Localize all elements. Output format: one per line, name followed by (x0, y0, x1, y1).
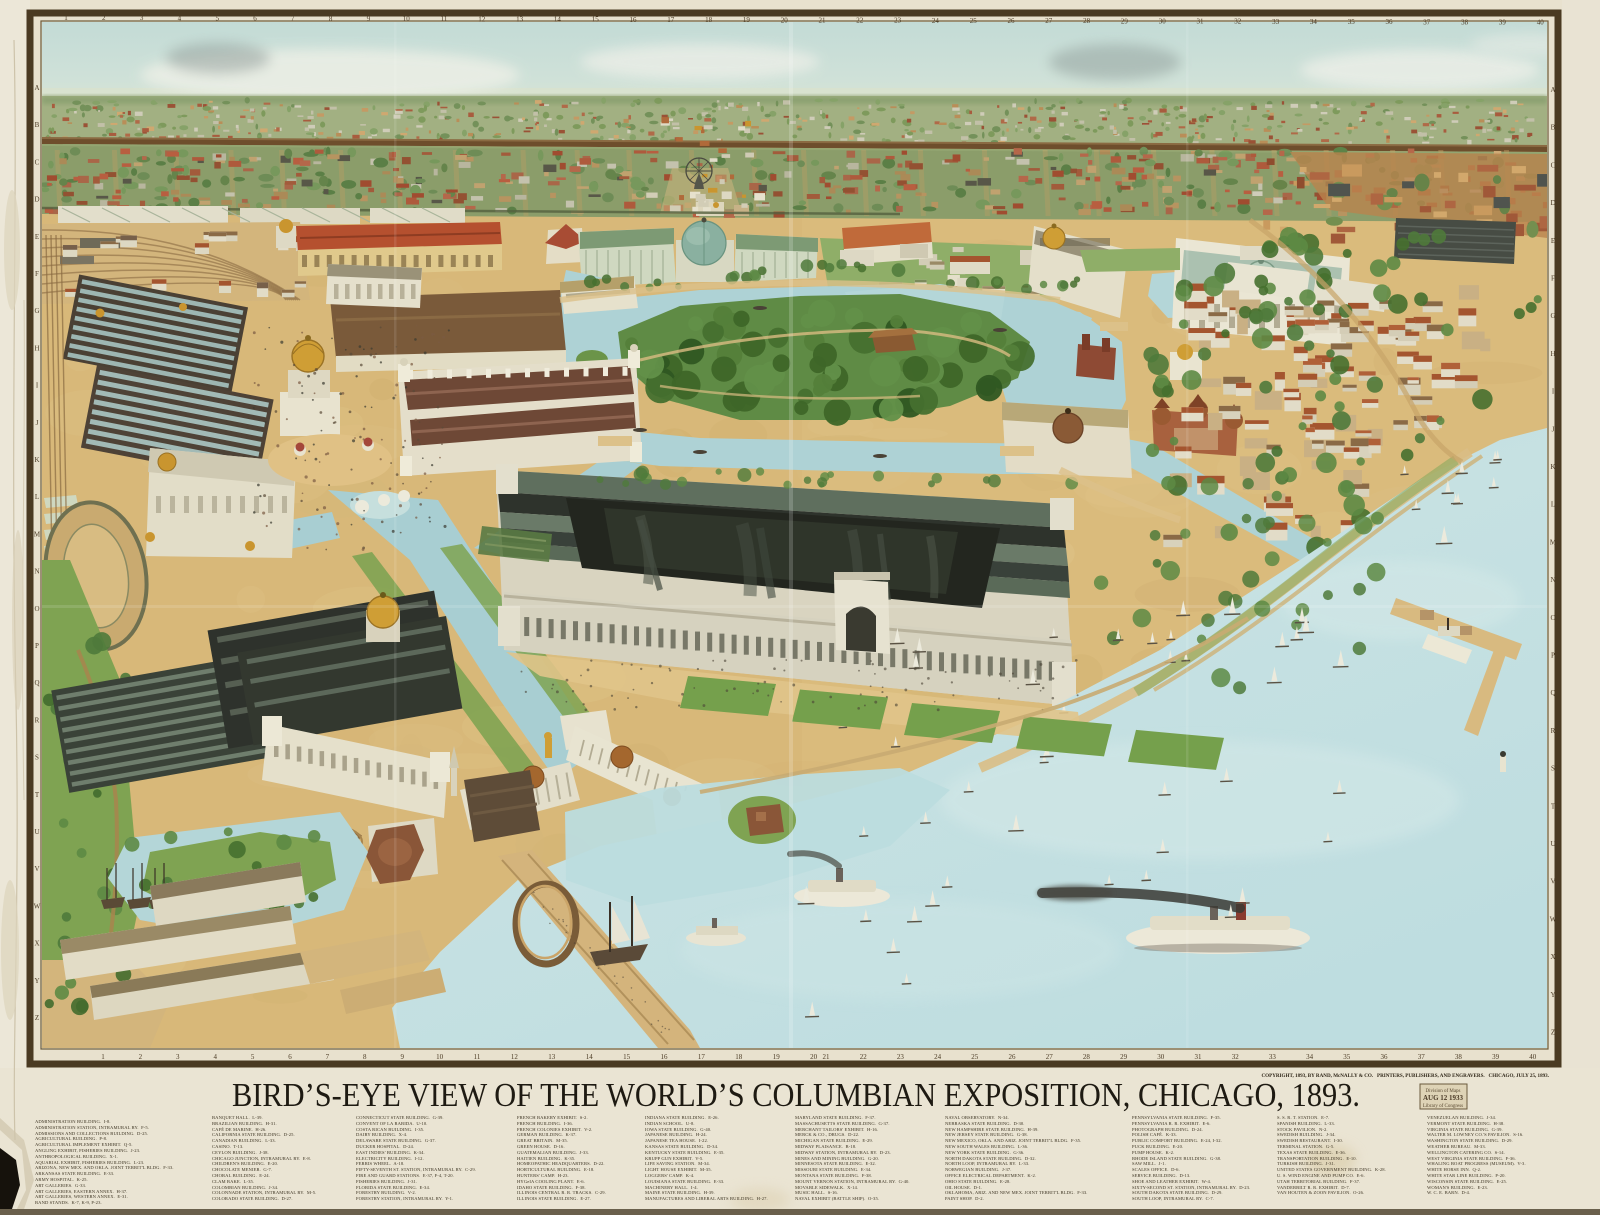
svg-text:20: 20 (810, 1053, 818, 1061)
svg-text:X: X (1550, 953, 1555, 961)
svg-text:20: 20 (781, 16, 789, 24)
svg-text:8: 8 (363, 1053, 367, 1061)
svg-text:2: 2 (139, 1053, 143, 1061)
svg-text:37: 37 (1423, 18, 1431, 26)
svg-text:5: 5 (251, 1053, 255, 1061)
svg-text:A: A (34, 84, 39, 92)
svg-text:26: 26 (1008, 17, 1016, 25)
svg-text:16: 16 (661, 1053, 669, 1061)
svg-text:S: S (35, 754, 39, 762)
svg-text:21: 21 (823, 1053, 831, 1061)
svg-text:7: 7 (326, 1053, 330, 1061)
svg-text:23: 23 (897, 1053, 905, 1061)
svg-text:32: 32 (1234, 18, 1242, 26)
svg-text:28: 28 (1083, 17, 1091, 25)
svg-text:4: 4 (178, 14, 182, 22)
svg-text:C: C (1551, 161, 1556, 169)
svg-text:30: 30 (1157, 1053, 1165, 1061)
svg-text:J: J (1552, 425, 1555, 433)
svg-text:P: P (35, 642, 39, 650)
svg-text:7: 7 (291, 15, 295, 23)
svg-text:Q: Q (34, 679, 39, 687)
svg-text:31: 31 (1197, 18, 1205, 26)
svg-text:11: 11 (441, 15, 448, 23)
svg-text:6: 6 (288, 1053, 292, 1061)
svg-text:W: W (1550, 915, 1557, 923)
svg-text:30: 30 (1159, 17, 1167, 25)
svg-text:40: 40 (1537, 19, 1545, 27)
svg-text:Library of Congress: Library of Congress (1423, 1104, 1463, 1109)
svg-text:23: 23 (894, 17, 902, 25)
svg-text:34: 34 (1306, 1053, 1314, 1061)
svg-text:16: 16 (630, 16, 638, 24)
svg-text:39: 39 (1492, 1053, 1500, 1061)
svg-text:17: 17 (698, 1053, 706, 1061)
svg-text:12: 12 (478, 15, 486, 23)
svg-text:T: T (35, 791, 40, 799)
svg-text:6: 6 (253, 15, 257, 23)
svg-text:B: B (35, 121, 40, 129)
svg-text:17: 17 (667, 16, 675, 24)
svg-text:25: 25 (971, 1053, 979, 1061)
svg-text:1: 1 (64, 14, 68, 22)
svg-text:D: D (1550, 199, 1555, 207)
svg-text:M: M (34, 530, 41, 538)
svg-text:M: M (1550, 538, 1557, 546)
svg-text:U: U (34, 828, 39, 836)
svg-text:2: 2 (102, 14, 106, 22)
svg-text:O: O (1550, 614, 1555, 622)
svg-text:34: 34 (1310, 18, 1318, 26)
svg-text:R: R (35, 716, 40, 724)
svg-text:L: L (35, 493, 39, 501)
svg-text:1: 1 (101, 1053, 105, 1061)
svg-text:K: K (34, 456, 39, 464)
svg-text:AUG 12 1933: AUG 12 1933 (1423, 1094, 1464, 1102)
svg-text:15: 15 (623, 1053, 631, 1061)
svg-text:18: 18 (705, 16, 713, 24)
svg-text:B: B (1551, 124, 1556, 132)
svg-text:N: N (1550, 576, 1555, 584)
svg-text:32: 32 (1232, 1053, 1240, 1061)
svg-text:29: 29 (1120, 1053, 1128, 1061)
svg-text:12: 12 (511, 1053, 519, 1061)
svg-text:33: 33 (1269, 1053, 1277, 1061)
svg-text:22: 22 (856, 17, 864, 25)
svg-text:13: 13 (516, 15, 524, 23)
svg-text:31: 31 (1195, 1053, 1203, 1061)
svg-text:K: K (1550, 463, 1555, 471)
svg-text:10: 10 (436, 1053, 444, 1061)
svg-text:5: 5 (215, 14, 219, 22)
svg-text:38: 38 (1461, 18, 1469, 26)
svg-text:V: V (1550, 878, 1555, 886)
svg-text:27: 27 (1046, 1053, 1054, 1061)
svg-text:19: 19 (743, 16, 751, 24)
svg-text:33: 33 (1272, 18, 1280, 26)
svg-text:14: 14 (554, 16, 562, 24)
svg-text:J: J (36, 419, 39, 427)
svg-text:U: U (1550, 840, 1555, 848)
svg-text:18: 18 (735, 1053, 743, 1061)
svg-text:H: H (1550, 350, 1555, 358)
svg-text:9: 9 (367, 15, 371, 23)
svg-text:4: 4 (213, 1053, 217, 1061)
svg-text:R: R (1551, 727, 1556, 735)
svg-text:Z: Z (1551, 1029, 1555, 1037)
svg-text:3: 3 (140, 14, 144, 22)
svg-text:G: G (34, 307, 39, 315)
svg-text:37: 37 (1418, 1053, 1426, 1061)
svg-text:19: 19 (773, 1053, 781, 1061)
svg-text:35: 35 (1343, 1053, 1351, 1061)
svg-text:27: 27 (1045, 17, 1053, 25)
svg-text:11: 11 (474, 1053, 481, 1061)
svg-text:38: 38 (1455, 1053, 1463, 1061)
svg-text:H: H (34, 344, 39, 352)
svg-text:G: G (1550, 312, 1555, 320)
svg-text:9: 9 (400, 1053, 404, 1061)
svg-text:15: 15 (592, 16, 600, 24)
svg-text:V: V (34, 865, 39, 873)
svg-text:22: 22 (860, 1053, 868, 1061)
svg-text:8: 8 (329, 15, 333, 23)
svg-text:36: 36 (1381, 1053, 1389, 1061)
svg-text:W: W (34, 902, 41, 910)
svg-text:C: C (35, 158, 40, 166)
svg-text:S: S (1551, 765, 1555, 773)
svg-text:25: 25 (970, 17, 978, 25)
svg-text:21: 21 (819, 16, 827, 24)
svg-text:F: F (35, 270, 39, 278)
svg-text:N: N (34, 568, 39, 576)
svg-text:36: 36 (1386, 18, 1394, 26)
svg-text:Q: Q (1550, 689, 1555, 697)
svg-text:A: A (1550, 86, 1555, 94)
svg-text:Z: Z (35, 1014, 39, 1022)
svg-text:Y: Y (1550, 991, 1555, 999)
svg-text:39: 39 (1499, 19, 1507, 27)
svg-text:13: 13 (548, 1053, 556, 1061)
svg-text:Y: Y (34, 977, 39, 985)
svg-text:3: 3 (176, 1053, 180, 1061)
svg-text:40: 40 (1529, 1053, 1537, 1061)
svg-text:P: P (1551, 652, 1555, 660)
svg-text:24: 24 (934, 1053, 942, 1061)
svg-text:24: 24 (932, 17, 940, 25)
svg-text:T: T (1551, 802, 1556, 810)
svg-text:10: 10 (403, 15, 411, 23)
svg-text:26: 26 (1009, 1053, 1017, 1061)
svg-text:BIRD’S-EYE VIEW OF THE WORLD’S: BIRD’S-EYE VIEW OF THE WORLD’S COLUMBIAN… (232, 1077, 1360, 1114)
svg-text:O: O (34, 605, 39, 613)
svg-text:E: E (1551, 237, 1555, 245)
svg-text:D: D (34, 196, 39, 204)
svg-text:L: L (1551, 501, 1555, 509)
svg-text:35: 35 (1348, 18, 1356, 26)
svg-text:E: E (35, 233, 39, 241)
svg-text:29: 29 (1121, 17, 1129, 25)
svg-text:F: F (1551, 275, 1555, 283)
svg-text:14: 14 (586, 1053, 594, 1061)
svg-text:X: X (34, 940, 39, 948)
svg-text:28: 28 (1083, 1053, 1091, 1061)
